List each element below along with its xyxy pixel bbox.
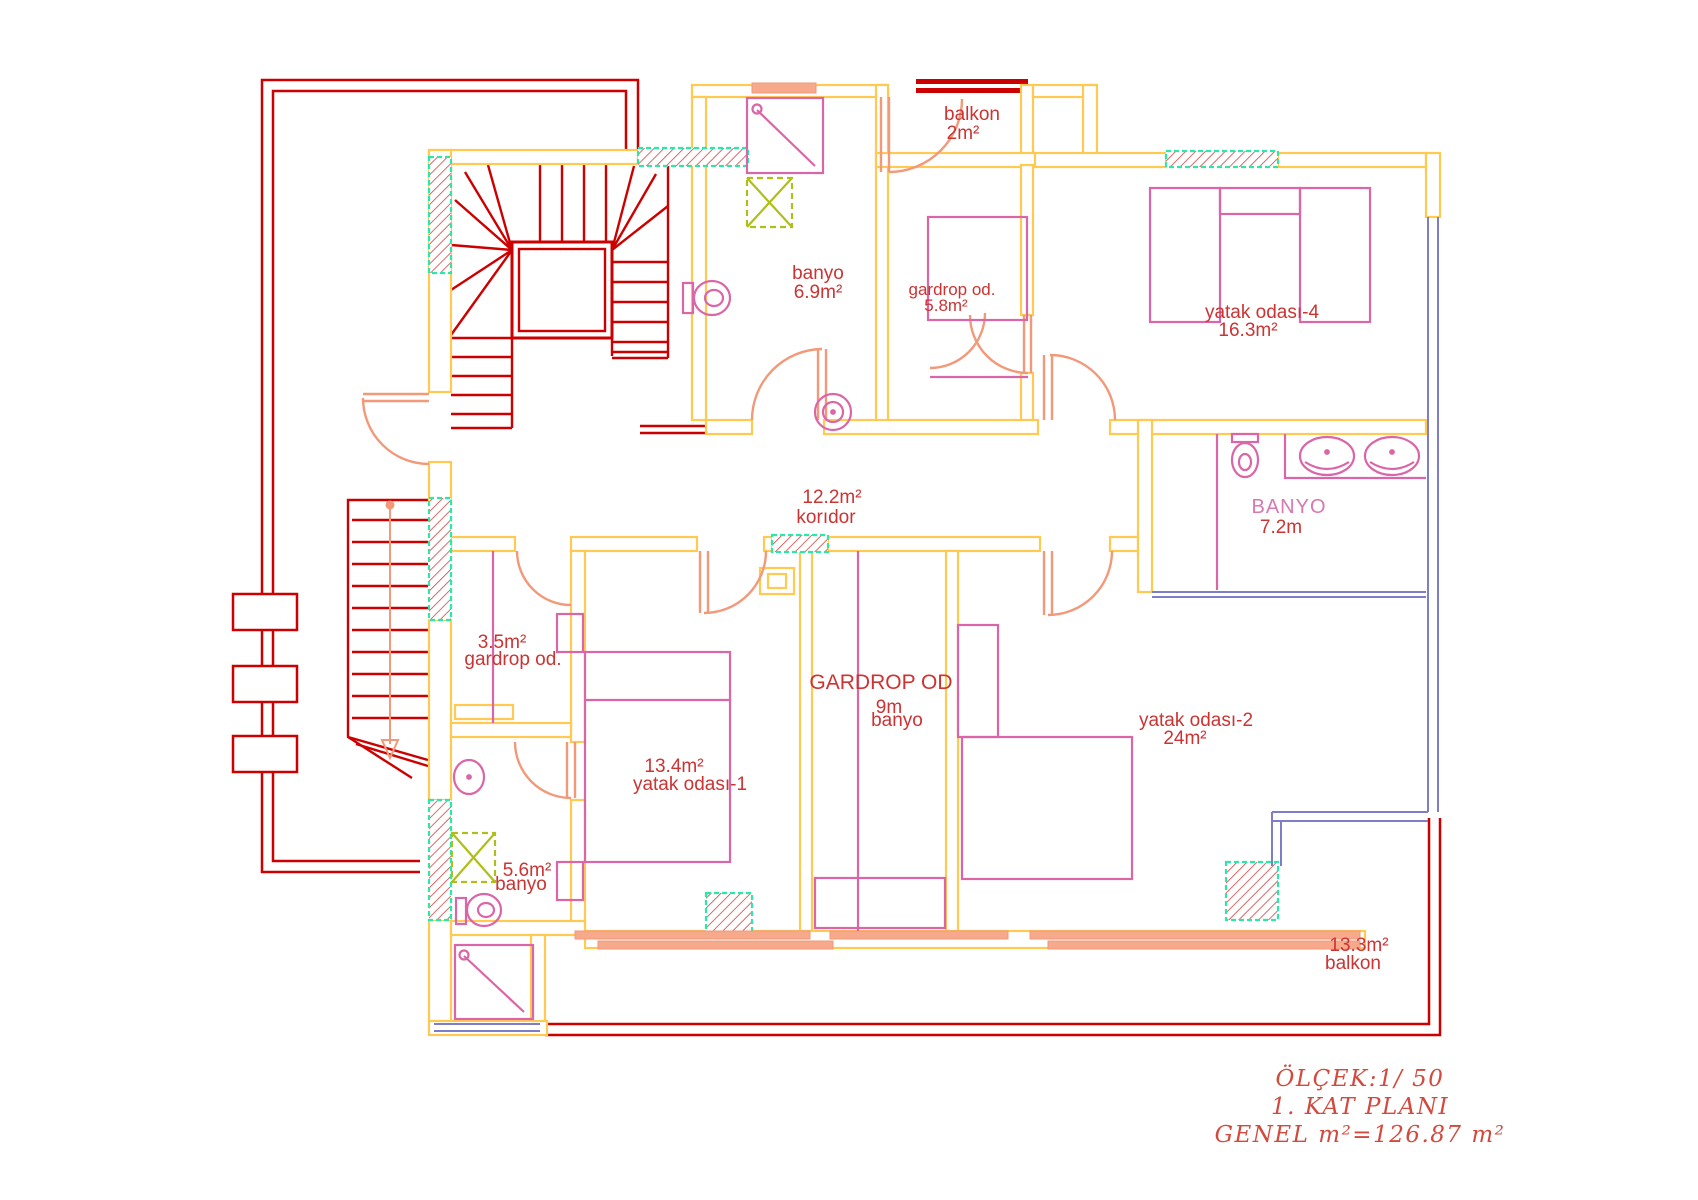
label-gardrop-mid-sub: banyo [871,710,923,731]
title-total-area: GENEL m²=126.87 m² [1215,1122,1506,1148]
bed-bedroom-2 [958,625,1132,879]
label-bedroom4-area: 16.3m² [1218,320,1277,341]
terrace-column [233,594,297,630]
top-balcony-railing [916,79,1028,93]
sink-icon-right-2 [1365,437,1419,475]
stair-main [451,164,668,428]
sink-icon-right-1 [1300,437,1354,475]
label-balkon-top-name: balkon [944,104,1000,125]
door-bedroom-4 [1044,355,1115,420]
window-banyo-top [752,83,816,93]
stair-secondary [348,500,428,778]
door-gardrop-top [970,315,1031,373]
label-bedroom1-name: yatak odası-1 [633,774,747,795]
doors [363,97,1115,798]
shower-symbol-top [747,98,823,173]
fixtures [454,98,1426,1019]
label-banyo-left-name: banyo [495,874,547,895]
bottom-balcony-railing [545,818,1440,1035]
label-banyo-right-area: 7.2m [1260,517,1302,538]
title-floor: 1. KAT PLANI [1271,1094,1449,1120]
shaft-x-top [747,178,792,227]
door-bedroom-1 [700,551,766,613]
label-balkon-bottom-name: balkon [1325,953,1381,974]
door-gardrop-left [517,551,571,605]
label-gardrop-left-name: gardrop od. [464,649,561,670]
banyo-counter [1285,434,1426,478]
shower-symbol-bottom [455,945,533,1019]
terrace-column [233,736,297,772]
label-banyo-top-name: banyo [792,263,844,284]
label-banyo-right-name: BANYO [1251,496,1326,518]
sink-icon-left [454,760,484,794]
door-bedroom-2 [1044,551,1112,615]
shaft-x-bottom [452,833,495,882]
label-gardrop-mid-name: GARDROP OD [809,671,952,694]
walls [429,85,1440,1035]
floor-plan-canvas: balkon 2m² banyo 6.9m² gardrop od. 5.8m²… [0,0,1698,1200]
toilet-icon-right [1232,434,1258,477]
label-koridor-area: 12.2m² [802,487,861,508]
label-banyo-top-area: 6.9m² [794,282,843,303]
label-koridor-name: korıdor [796,507,856,528]
label-gardrop-top-area: 5.8m² [924,296,968,315]
label-bedroom2-area: 24m² [1163,728,1206,749]
title-scale: ÖLÇEK:1/ 50 [1276,1065,1445,1092]
door-terrace-west [363,394,429,464]
floor-plan-page: balkon 2m² banyo 6.9m² gardrop od. 5.8m²… [0,0,1698,1200]
door-banyo-left [515,742,575,798]
label-balkon-top-area: 2m² [947,123,980,144]
terrace-column [233,666,297,702]
bathtub [815,878,945,928]
title-block: ÖLÇEK:1/ 50 1. KAT PLANI GENEL m²=126.87… [1215,1065,1506,1148]
